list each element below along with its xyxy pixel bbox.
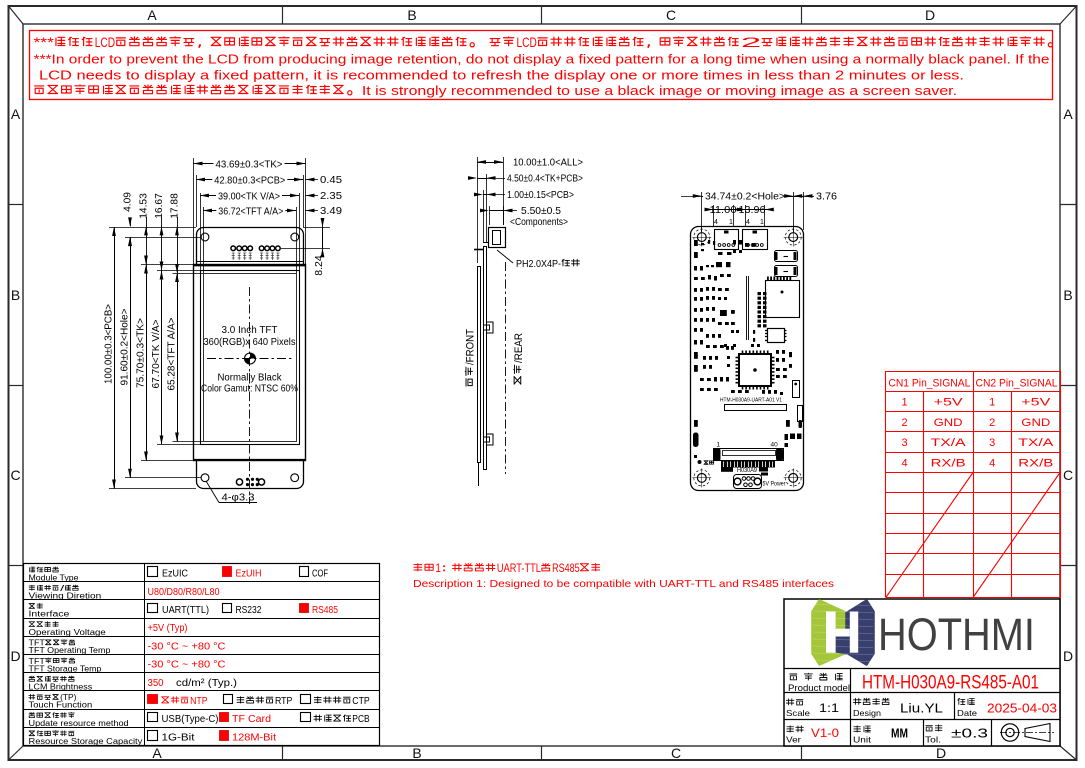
svg-text:40: 40	[771, 442, 779, 449]
svg-text:1.00±0.15<PCB>: 1.00±0.15<PCB>	[507, 189, 574, 201]
svg-text:HTM-H030A9-RS485-A01: HTM-H030A9-RS485-A01	[862, 673, 1039, 694]
svg-text:-30 °C ~ +80 °C: -30 °C ~ +80 °C	[148, 660, 226, 671]
svg-text:14.53: 14.53	[139, 193, 150, 219]
svg-text:MM: MM	[891, 727, 908, 741]
svg-text:4.09: 4.09	[123, 192, 134, 212]
svg-text:***: ***	[34, 35, 55, 50]
svg-text:3.49: 3.49	[320, 205, 342, 217]
svg-text:2: 2	[901, 417, 907, 429]
svg-text:Color Gamut: NTSC 60%: Color Gamut: NTSC 60%	[201, 384, 298, 395]
svg-text:100.00±0.3<PCB>: 100.00±0.3<PCB>	[104, 304, 115, 384]
svg-text:2025-04-03: 2025-04-03	[987, 702, 1057, 716]
svg-text:4.50±0.4<TK+PCB>: 4.50±0.4<TK+PCB>	[507, 173, 583, 185]
svg-text:It is strongly recommended to: It is strongly recommended to use a blac…	[362, 83, 957, 98]
svg-text:TF Card: TF Card	[232, 714, 271, 725]
svg-text:36.72<TFT A/A>: 36.72<TFT A/A>	[218, 205, 283, 217]
svg-text:PH2.0X4P-: PH2.0X4P-	[516, 258, 561, 270]
svg-text:EzUIH: EzUIH	[236, 569, 262, 580]
svg-text:43.69±0.3<TK>: 43.69±0.3<TK>	[216, 158, 283, 170]
svg-text:Date: Date	[957, 708, 977, 718]
svg-text:V1-0: V1-0	[811, 726, 839, 740]
svg-text:16.67: 16.67	[154, 193, 165, 219]
svg-text:Unit: Unit	[853, 735, 872, 745]
svg-text:4: 4	[714, 219, 718, 226]
svg-text:Update resource method: Update resource method	[29, 719, 129, 728]
svg-text:39.00<TK V/A>: 39.00<TK V/A>	[218, 190, 280, 202]
svg-text:3.76: 3.76	[816, 191, 837, 203]
svg-text:C: C	[666, 7, 676, 23]
svg-text:11.00: 11.00	[710, 204, 737, 216]
svg-text:A: A	[1063, 106, 1073, 122]
svg-text:LCD: LCD	[95, 35, 116, 50]
svg-text:RS485: RS485	[552, 563, 580, 575]
svg-text:GND: GND	[934, 417, 963, 429]
svg-text:D: D	[925, 7, 935, 23]
svg-text:4: 4	[901, 457, 907, 469]
svg-text:CTP: CTP	[352, 696, 370, 707]
svg-text:TX/A: TX/A	[1018, 437, 1054, 449]
svg-text:LCD needs to display a fixed p: LCD needs to display a fixed pattern, it…	[39, 69, 964, 83]
svg-text:65.28<TFT A/A>: 65.28<TFT A/A>	[167, 317, 178, 390]
svg-text:A: A	[147, 7, 157, 23]
svg-text:***In order to prevent the LCD: ***In order to prevent the LCD from prod…	[34, 53, 1050, 67]
svg-text:17.88: 17.88	[170, 193, 181, 219]
svg-text:RS485: RS485	[312, 605, 338, 616]
svg-text:±0.3: ±0.3	[951, 726, 988, 741]
svg-text:13.96: 13.96	[739, 204, 766, 216]
svg-text:USB(Type-C): USB(Type-C)	[162, 714, 219, 725]
svg-text:HTM-H030A9-UART-A01 V1: HTM-H030A9-UART-A01 V1	[720, 398, 782, 404]
svg-text:0.45: 0.45	[320, 174, 342, 186]
svg-text:NTP: NTP	[190, 696, 208, 707]
svg-text:U80/D80/R80/L80: U80/D80/R80/L80	[148, 587, 220, 598]
svg-text:UART(TTL): UART(TTL)	[162, 605, 209, 616]
svg-text:D: D	[1063, 648, 1073, 664]
svg-text:TFT Operating Temp: TFT Operating Temp	[29, 646, 112, 655]
svg-text:B: B	[412, 745, 421, 761]
svg-text:4: 4	[989, 457, 995, 469]
svg-text:2: 2	[741, 35, 761, 50]
svg-text:TFT Storage Temp: TFT Storage Temp	[29, 664, 102, 673]
svg-text:CN2 Pin_SIGNAL: CN2 Pin_SIGNAL	[976, 378, 1058, 390]
svg-text:+5V: +5V	[934, 397, 964, 409]
svg-text:Ver: Ver	[786, 735, 801, 745]
svg-text:1: 1	[717, 442, 721, 449]
svg-text:1:1: 1:1	[819, 701, 839, 715]
svg-text:UART-TTL: UART-TTL	[497, 563, 541, 575]
svg-text:D: D	[936, 745, 946, 761]
svg-text:C: C	[671, 745, 681, 761]
svg-text:75.70±0.3<TK>: 75.70±0.3<TK>	[136, 318, 147, 388]
svg-text:1: 1	[760, 219, 764, 226]
svg-text:B: B	[407, 7, 416, 23]
svg-text:HOTHMI: HOTHMI	[878, 609, 1035, 660]
svg-text:42.80±0.3<PCB>: 42.80±0.3<PCB>	[214, 174, 285, 186]
svg-text:350: 350	[148, 678, 164, 689]
svg-text:Design: Design	[853, 708, 881, 718]
svg-text:2.35: 2.35	[320, 190, 342, 202]
svg-text:/FRONT: /FRONT	[465, 329, 477, 365]
svg-text:5V Power: 5V Power	[763, 482, 786, 488]
svg-text:RTP: RTP	[275, 696, 293, 707]
svg-text:Viewing Diretion: Viewing Diretion	[29, 592, 102, 601]
svg-text:1: 1	[435, 563, 441, 575]
svg-text:1: 1	[989, 397, 995, 409]
svg-text:91.60±0.2<Hole>: 91.60±0.2<Hole>	[120, 308, 131, 385]
svg-text:1: 1	[901, 397, 907, 409]
svg-text:RX/B: RX/B	[931, 457, 966, 469]
svg-text:Module Type: Module Type	[29, 573, 80, 582]
svg-text:Interface: Interface	[29, 610, 71, 619]
svg-text:Resource Storage Capacity: Resource Storage Capacity	[29, 737, 143, 746]
svg-text:128M-Bit: 128M-Bit	[232, 732, 276, 743]
svg-text:TX/A: TX/A	[931, 437, 967, 449]
svg-text:Touch Function: Touch Function	[29, 701, 93, 710]
svg-text:3: 3	[989, 437, 995, 449]
svg-text:COF: COF	[312, 569, 328, 580]
svg-text:/REAR: /REAR	[513, 333, 525, 363]
svg-text:360(RGB)x 640 Pixels: 360(RGB)x 640 Pixels	[204, 337, 296, 348]
svg-text:B: B	[11, 287, 20, 303]
svg-text:GND: GND	[1021, 417, 1050, 429]
svg-text:1G-Bit: 1G-Bit	[162, 732, 195, 743]
svg-text:4: 4	[746, 219, 750, 226]
svg-text:8.24: 8.24	[313, 255, 325, 276]
svg-text:LCM Brightness: LCM Brightness	[29, 683, 93, 692]
svg-text:67.70<TK V/A>: 67.70<TK V/A>	[151, 319, 162, 388]
svg-text:-30 °C ~ +80 °C: -30 °C ~ +80 °C	[148, 641, 226, 652]
svg-text:34.74±0.2<Hole>: 34.74±0.2<Hole>	[705, 191, 785, 203]
svg-text:C: C	[1063, 467, 1073, 483]
svg-text:3: 3	[901, 437, 907, 449]
svg-text:PCB: PCB	[352, 714, 370, 725]
svg-text:3.0 Inch TFT: 3.0 Inch TFT	[222, 325, 278, 336]
svg-text:2: 2	[989, 417, 995, 429]
svg-text:Product model: Product model	[788, 683, 850, 693]
svg-text:CN1 Pin_SIGNAL: CN1 Pin_SIGNAL	[888, 378, 970, 390]
svg-text:RX/B: RX/B	[1018, 457, 1053, 469]
svg-text:H030A9: H030A9	[737, 468, 758, 474]
svg-text:+5V: +5V	[1021, 397, 1051, 409]
svg-text:cd/m² (Typ.): cd/m² (Typ.)	[176, 678, 237, 689]
svg-text:RS232: RS232	[236, 605, 262, 616]
svg-text:LCD: LCD	[517, 35, 538, 50]
svg-text:Description 1: Designed to be: Description 1: Designed to be compatible…	[413, 578, 834, 590]
svg-text:C: C	[10, 467, 20, 483]
svg-text:+5V (Typ): +5V (Typ)	[148, 623, 188, 634]
svg-text:4-φ3.3: 4-φ3.3	[222, 492, 255, 504]
svg-text:A: A	[152, 745, 162, 761]
svg-text:1: 1	[729, 219, 733, 226]
svg-text:Operating Voltage: Operating Voltage	[29, 628, 107, 637]
svg-text:<Components>: <Components>	[510, 216, 568, 228]
svg-text:Scale: Scale	[786, 708, 810, 718]
svg-text:B: B	[1063, 287, 1072, 303]
svg-text:D: D	[10, 648, 20, 664]
svg-text:EzUIC: EzUIC	[162, 569, 188, 580]
svg-text:Liu.YL: Liu.YL	[900, 702, 943, 716]
svg-text:Tol.: Tol.	[925, 735, 941, 745]
svg-text:10.00±1.0<ALL>: 10.00±1.0<ALL>	[513, 157, 583, 169]
svg-text:A: A	[11, 106, 21, 122]
svg-text:Normally Black: Normally Black	[218, 373, 283, 384]
